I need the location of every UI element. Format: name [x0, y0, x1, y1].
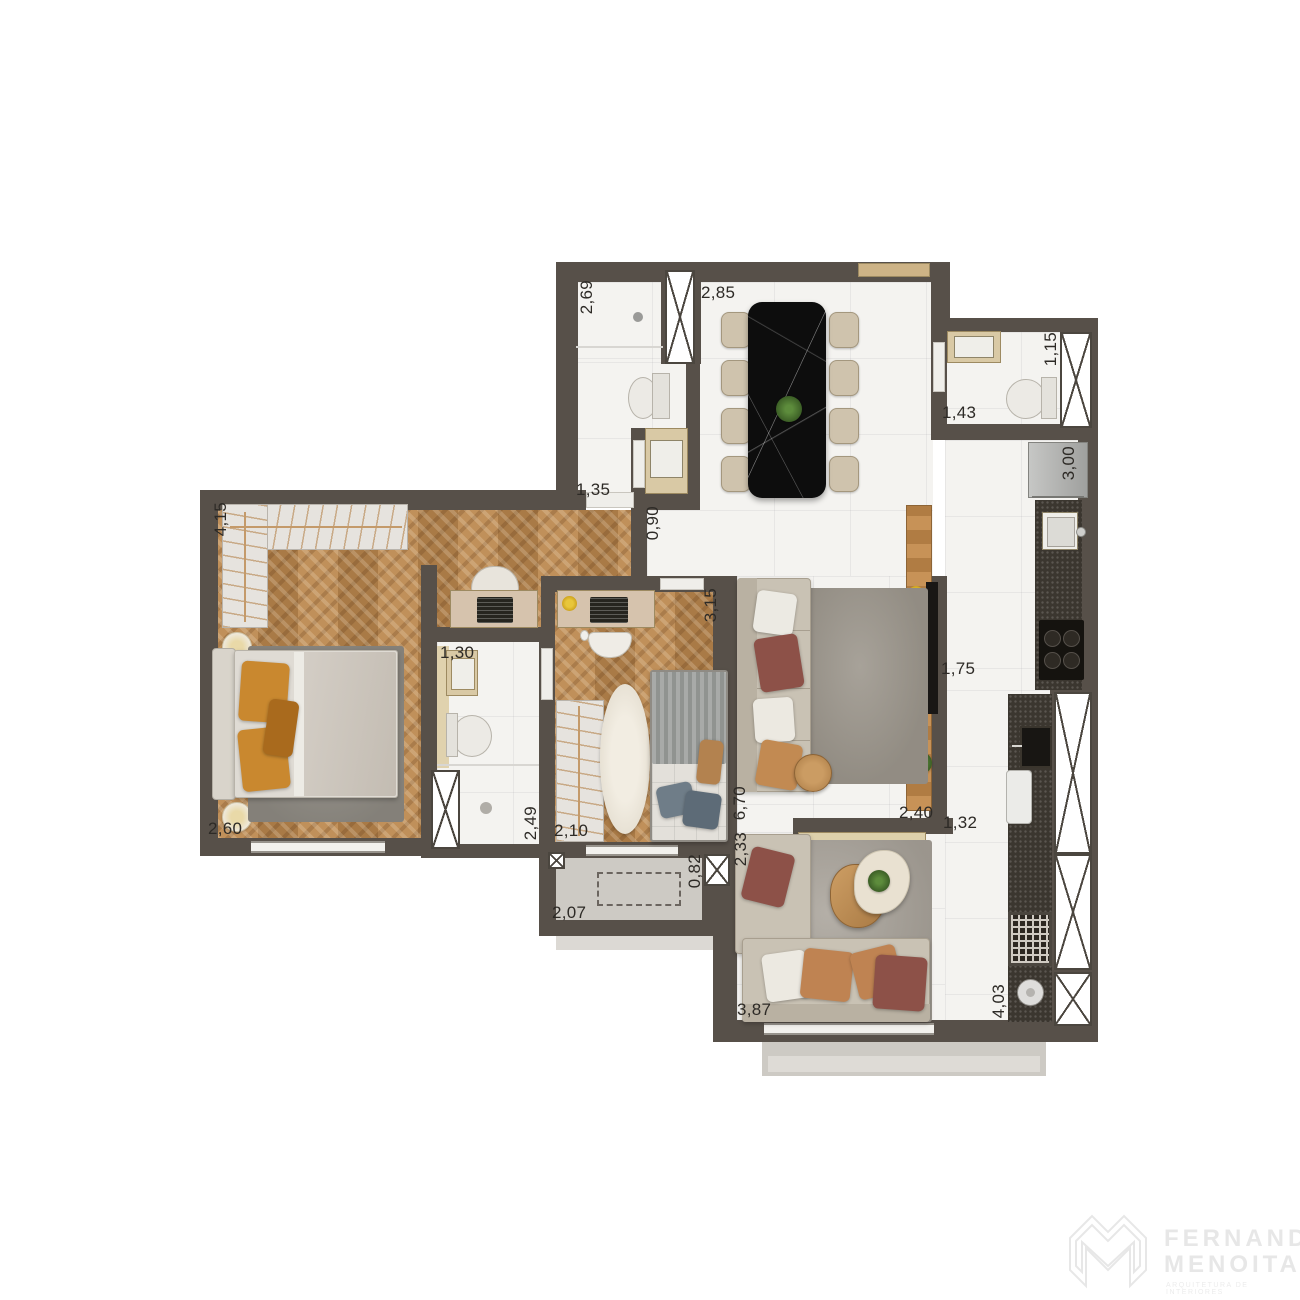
refrigerator-handle — [1032, 496, 1084, 498]
wall-dining-right — [931, 262, 950, 322]
master-bed-duvet — [300, 652, 396, 796]
side-table — [794, 754, 832, 792]
wardrobe-rod — [230, 526, 402, 528]
dim-label: 2,10 — [554, 822, 588, 839]
brand-tagline: ARQUITETURA DE INTERIORES — [1166, 1282, 1300, 1296]
wardrobe-rod — [244, 512, 246, 622]
toilet-tank — [1041, 377, 1057, 419]
burner-icon — [1044, 630, 1061, 647]
wall-nook-left — [421, 565, 437, 627]
dim-label: 1,32 — [943, 814, 977, 831]
kitchen-sink-basin — [1047, 517, 1075, 547]
sink — [954, 336, 994, 358]
dining-chair — [829, 408, 859, 444]
service-cabinet — [1020, 726, 1052, 768]
brand-monogram-icon — [1062, 1208, 1154, 1296]
ventilation-shaft-icon — [1054, 972, 1092, 1026]
bed-pillow — [696, 739, 724, 785]
brand-name-line2: MENOITA — [1164, 1252, 1300, 1278]
ventilation-shaft-icon — [1054, 854, 1092, 970]
dining-chair — [829, 360, 859, 396]
guest-toilet-door — [933, 342, 945, 392]
dim-label: 0,82 — [686, 854, 703, 888]
sink — [650, 440, 683, 478]
dining-chair — [721, 408, 751, 444]
dim-label: 3,87 — [737, 1001, 771, 1018]
dining-chair — [721, 360, 751, 396]
bedroom2-rug — [600, 684, 650, 834]
living-sofa-back — [737, 578, 757, 792]
cooktop — [1039, 620, 1084, 680]
shower-divider — [437, 764, 539, 766]
dim-label: 2,40 — [899, 804, 933, 821]
master-bed-headboard — [212, 648, 236, 800]
dining-chair — [829, 456, 859, 492]
entry-door-mat — [858, 263, 930, 277]
ventilation-shaft-icon — [704, 854, 730, 886]
ventilation-shaft-icon — [1060, 332, 1092, 428]
living-rug — [804, 588, 928, 784]
burner-icon — [1044, 652, 1061, 669]
dim-label: 2,07 — [552, 904, 586, 921]
terrace-optional-area — [597, 872, 681, 906]
cabinet-handle — [1012, 745, 1022, 747]
ventilation-shaft-icon — [665, 270, 695, 364]
suite-bathroom-door — [541, 648, 553, 700]
faucet-icon — [1076, 527, 1086, 537]
throw-pillow — [753, 633, 805, 693]
wall-guesttoilet-top — [931, 318, 1098, 332]
dim-label: 4,03 — [990, 984, 1007, 1018]
wall-bath-social-right — [686, 360, 700, 496]
plant-icon — [868, 870, 890, 892]
dim-label: 1,43 — [942, 404, 976, 421]
shower-drain-icon — [480, 802, 492, 814]
wardrobe-rod — [578, 706, 580, 836]
dim-label: 6,70 — [731, 786, 748, 820]
dim-label: 2,69 — [578, 280, 595, 314]
throw-pillow — [872, 954, 928, 1011]
ventilation-shaft-icon — [431, 770, 460, 849]
burner-icon — [1063, 630, 1080, 647]
wall-suitebath-top — [421, 627, 555, 642]
dim-label: 1,35 — [576, 481, 610, 498]
toilet — [452, 715, 492, 757]
bedroom2-window — [586, 845, 678, 856]
dim-label: 3,00 — [1060, 446, 1077, 480]
barbecue-grill — [1008, 912, 1052, 966]
dim-label: 4,15 — [212, 502, 229, 536]
laundry-tub-drain — [1026, 988, 1035, 997]
table-plant-icon — [776, 396, 802, 422]
dim-label: 3,15 — [702, 588, 719, 622]
balcony-sliding-door — [764, 1023, 934, 1035]
laptop-icon — [590, 597, 628, 623]
toilet-tank — [652, 373, 670, 419]
wall-guesttoilet-bottom — [931, 424, 1080, 440]
toilet-tank — [446, 713, 458, 757]
dining-chair — [829, 312, 859, 348]
burner-icon — [1063, 652, 1080, 669]
washing-machine — [1006, 770, 1032, 824]
master-bedroom-window — [251, 841, 385, 853]
brand-name-line1: FERNANDO — [1164, 1226, 1300, 1252]
dim-label: 1,75 — [941, 660, 975, 677]
dining-chair — [721, 456, 751, 492]
sink-basin — [451, 658, 475, 690]
bed-pillow — [682, 790, 723, 831]
ventilation-shaft-icon — [548, 852, 565, 869]
dim-label: 2,60 — [208, 820, 242, 837]
throw-pillow — [800, 948, 855, 1003]
bedroom2-door — [660, 578, 704, 590]
dim-label: 2,33 — [732, 832, 749, 866]
floor-plan: 2,69 2,85 1,15 1,43 3,00 1,35 0,90 4,15 … — [0, 0, 1300, 1300]
shower-divider — [576, 346, 663, 348]
throw-pillow — [753, 697, 796, 744]
bath-social-door — [633, 440, 645, 488]
laptop-icon — [477, 597, 513, 623]
fruit-bowl-icon — [562, 596, 577, 611]
dim-label: 1,30 — [440, 644, 474, 661]
dim-label: 2,85 — [701, 284, 735, 301]
dim-label: 2,49 — [522, 806, 539, 840]
balcony-edge — [768, 1056, 1040, 1072]
wall-bath-social-left — [556, 262, 578, 502]
dim-label: 0,90 — [644, 506, 661, 540]
dim-label: 1,15 — [1042, 332, 1059, 366]
dining-chair — [721, 312, 751, 348]
shower-head-icon — [633, 312, 643, 322]
refrigerator — [1028, 442, 1088, 498]
toilet — [1006, 379, 1046, 419]
ventilation-shaft-icon — [1054, 692, 1092, 854]
throw-pillow — [752, 589, 797, 636]
brand-watermark: FERNANDO MENOITA ARQUITETURA DE INTERIOR… — [1062, 1208, 1300, 1300]
